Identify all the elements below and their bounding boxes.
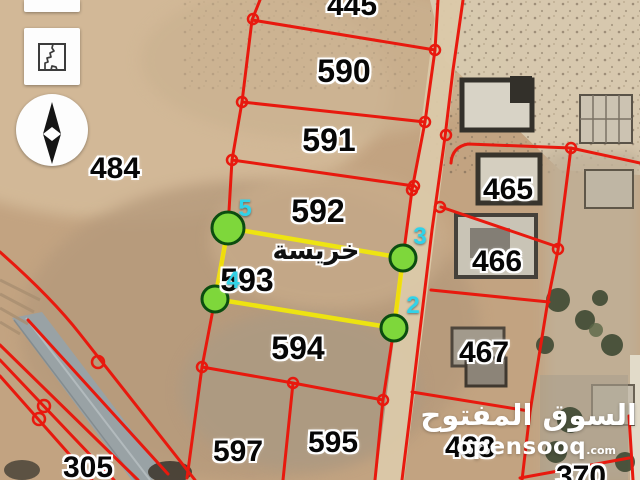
parcel-label: 592 (291, 195, 344, 227)
parcel-label: 370 (556, 462, 606, 480)
parcel-label: 590 (317, 55, 370, 87)
parcel-label: 465 (483, 175, 533, 205)
parcel-label: 467 (459, 338, 509, 368)
map-viewport: 445 590 591 592 593 594 595 597 305 484 … (0, 0, 640, 480)
watermark-domain-suffix: .com (586, 444, 616, 457)
watermark-brand: opensooq (456, 434, 586, 460)
map-outline-icon (35, 40, 69, 74)
corner-marker (390, 245, 416, 271)
map-type-button[interactable] (24, 28, 80, 85)
watermark-latin-text: opensooq.com (456, 436, 616, 459)
parcel-label: 445 (327, 0, 377, 21)
parcel-label: 597 (213, 437, 263, 467)
parcel-label: 305 (63, 453, 113, 480)
area-name-label: خريسة (273, 238, 360, 264)
vertex-number-label: 3 (413, 225, 426, 249)
compass-button[interactable] (16, 94, 88, 166)
vertex-number-label: 2 (406, 294, 419, 318)
parcel-label: 595 (308, 428, 358, 458)
parcel-label: 484 (90, 154, 140, 184)
parcel-label: 594 (271, 332, 324, 364)
parcel-label: 591 (302, 124, 355, 156)
vertex-number-label: 4 (226, 269, 239, 293)
watermark-arabic-text: السوق المفتوح (420, 401, 637, 430)
partially-visible-control-button[interactable] (24, 0, 80, 12)
corner-marker (381, 315, 407, 341)
vertex-number-label: 5 (238, 197, 251, 221)
parcel-label: 466 (472, 247, 522, 277)
north-arrow-icon (16, 94, 88, 166)
